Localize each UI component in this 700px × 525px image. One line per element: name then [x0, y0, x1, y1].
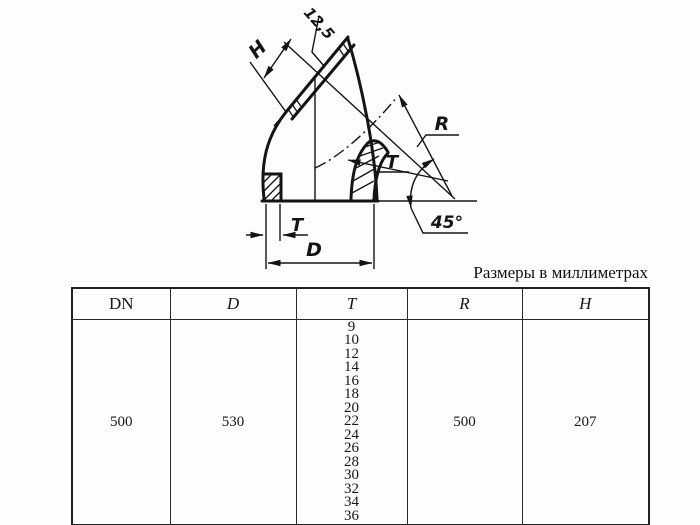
axis-45 — [284, 42, 455, 199]
label-angle-45: 45° — [430, 213, 463, 233]
dimensions-table: DN D T R H 500 530 9 10 12 14 16 18 20 — [71, 287, 650, 525]
header-r: R — [407, 288, 522, 320]
document-page: H 12,5 R T 45° T D Размеры в миллиметрах… — [0, 0, 700, 525]
header-h: H — [522, 288, 649, 320]
t-value: 36 — [297, 510, 407, 524]
header-d: D — [170, 288, 296, 320]
label-h: H — [244, 36, 271, 63]
cell-dn: 500 — [72, 320, 170, 525]
dimension-h-arrow — [264, 39, 291, 78]
label-t-wall: T — [386, 152, 400, 173]
header-dn: DN — [72, 288, 170, 320]
cell-d: 530 — [170, 320, 296, 525]
label-t-bottom: T — [291, 215, 305, 236]
table-row: 500 530 9 10 12 14 16 18 20 22 24 26 28 … — [72, 320, 649, 525]
label-d: D — [306, 239, 322, 261]
header-t: T — [296, 288, 407, 320]
table-caption: Размеры в миллиметрах — [348, 263, 648, 283]
cell-h: 207 — [522, 320, 649, 525]
drawing-labels: H 12,5 R T 45° T D — [244, 4, 463, 261]
label-r: R — [435, 113, 450, 135]
cell-t-values: 9 10 12 14 16 18 20 22 24 26 28 30 32 34… — [296, 320, 407, 525]
elbow-45-technical-drawing: H 12,5 R T 45° T D — [0, 0, 700, 285]
table-header-row: DN D T R H — [72, 288, 649, 320]
cell-r: 500 — [407, 320, 522, 525]
label-roughness-value: 12,5 — [300, 4, 338, 44]
